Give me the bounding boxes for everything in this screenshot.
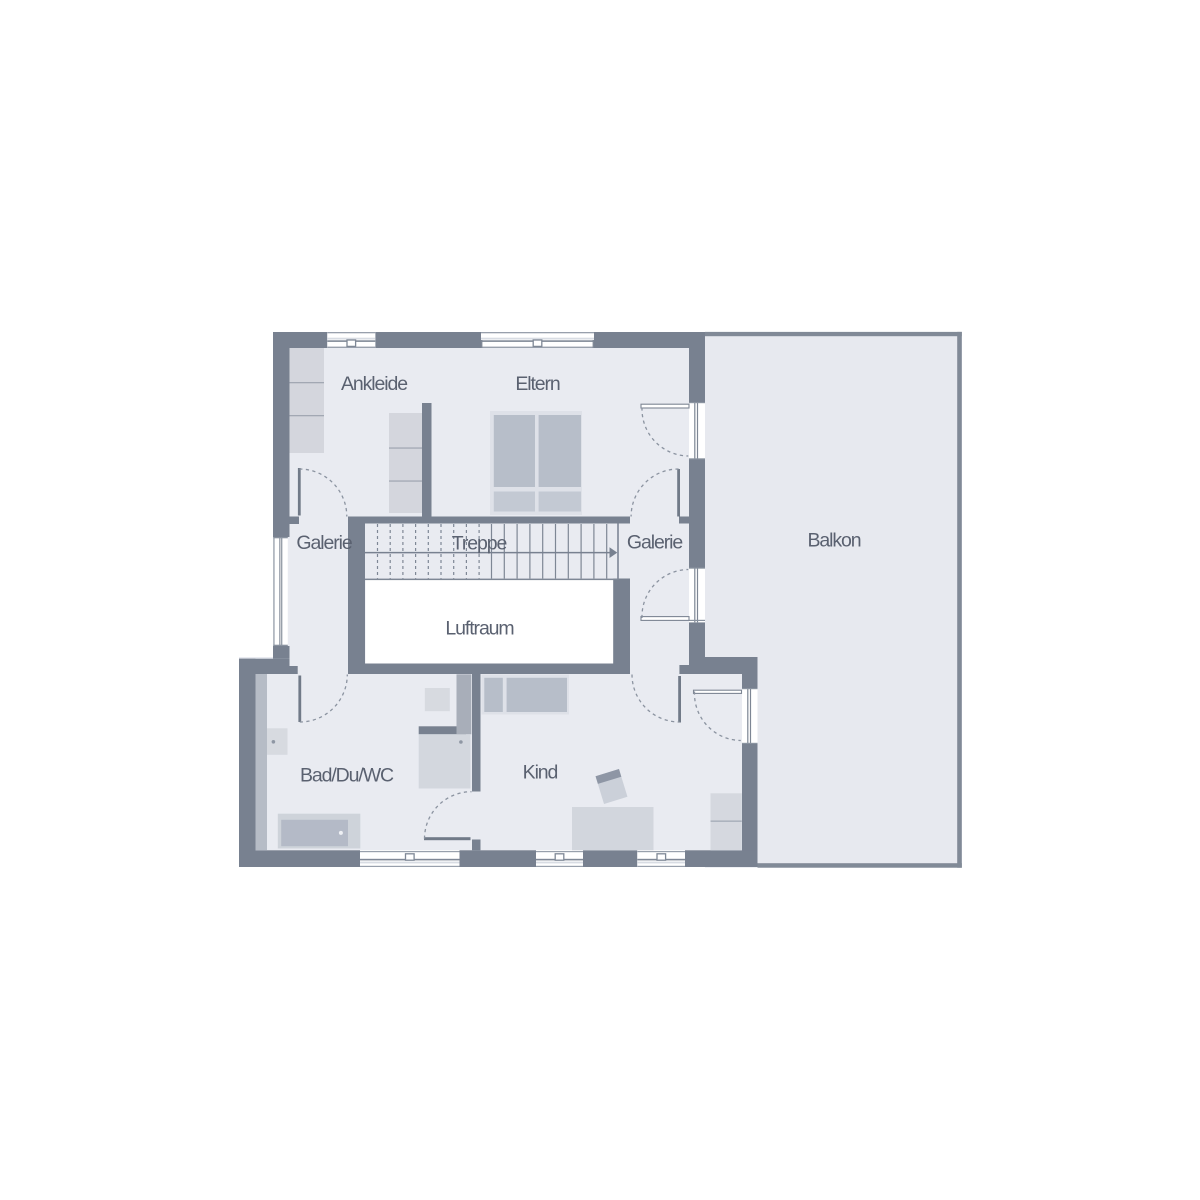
svg-text:Eltern: Eltern [515, 373, 560, 395]
svg-text:Luftraum: Luftraum [445, 618, 513, 640]
svg-text:Bad/Du/WC: Bad/Du/WC [300, 765, 394, 787]
svg-text:Treppe: Treppe [452, 533, 507, 555]
svg-text:Balkon: Balkon [807, 530, 860, 552]
svg-text:Kind: Kind [523, 762, 558, 784]
svg-text:Galerie: Galerie [627, 532, 682, 554]
svg-text:Galerie: Galerie [296, 532, 351, 554]
svg-text:Ankleide: Ankleide [341, 373, 407, 395]
